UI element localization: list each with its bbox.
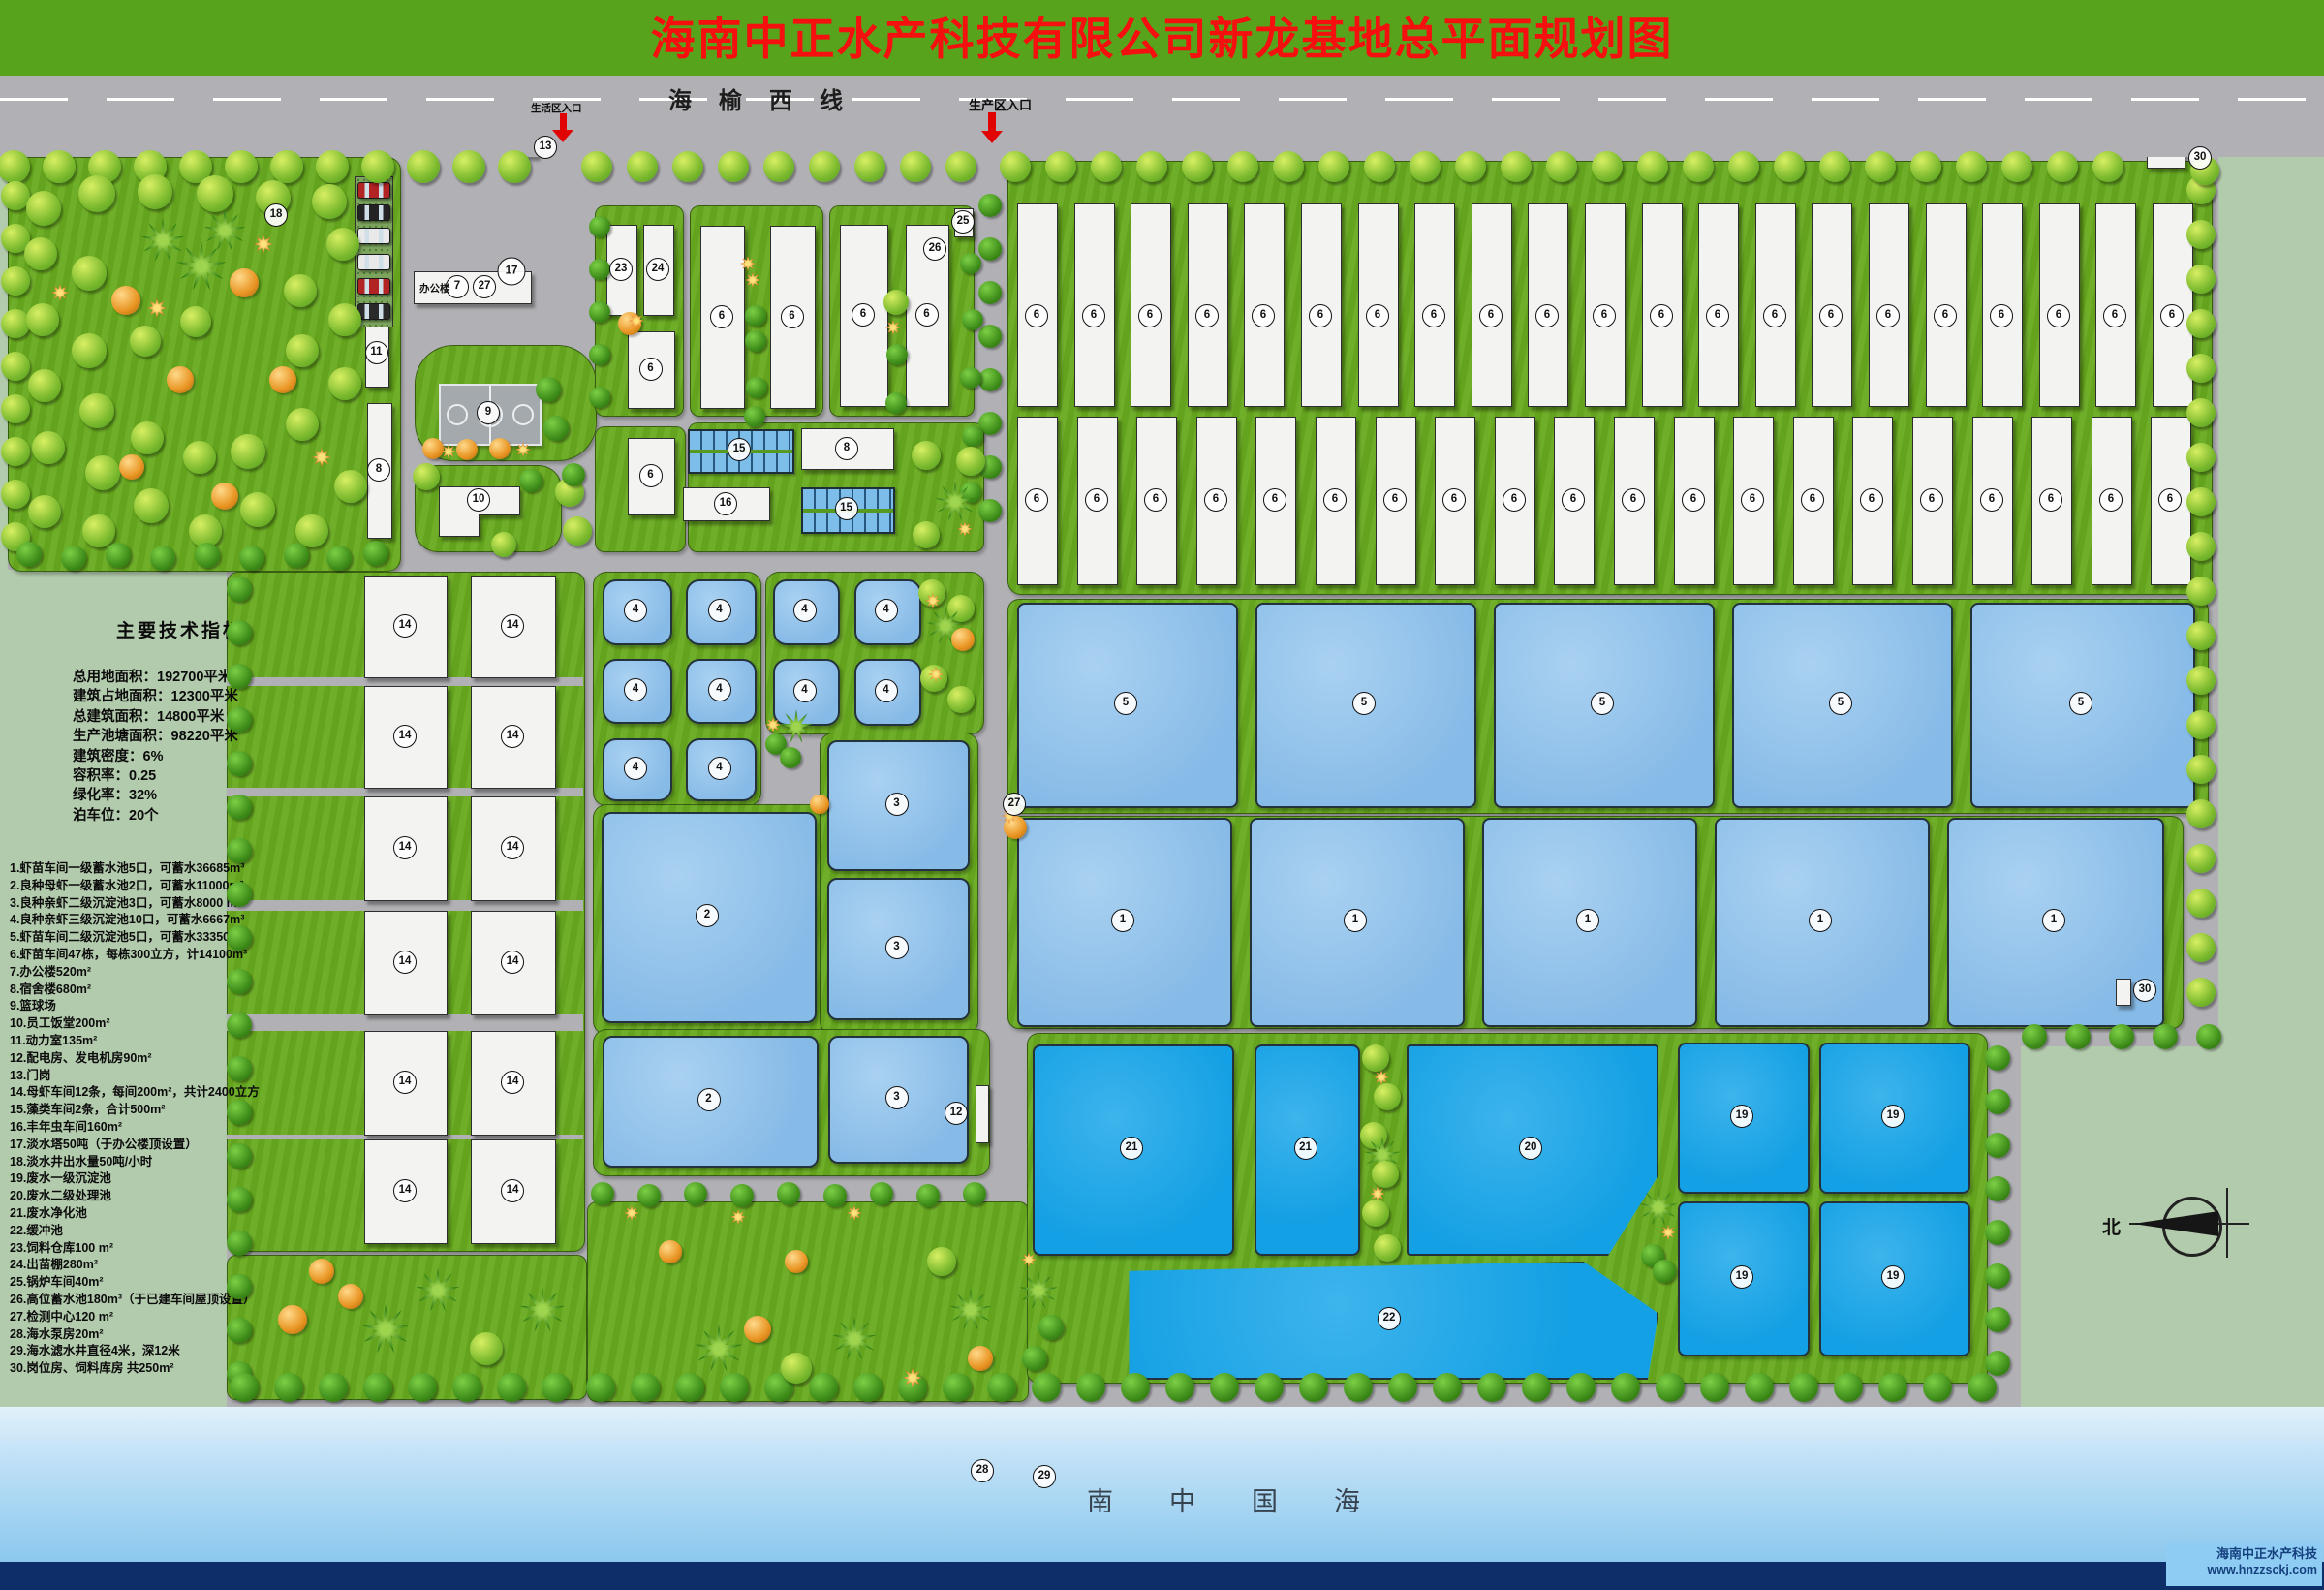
tree-icon xyxy=(1182,151,1213,182)
bush-icon xyxy=(562,463,585,486)
bush-icon xyxy=(408,1373,437,1402)
bush-icon xyxy=(1611,1373,1640,1402)
orange-tree-icon xyxy=(968,1346,993,1371)
tree-icon xyxy=(197,175,233,212)
tree-icon xyxy=(2186,265,2216,294)
flower-burst-icon xyxy=(903,1368,922,1387)
tree-icon xyxy=(498,150,531,183)
number-marker-6: 6 xyxy=(2160,304,2184,327)
bush-icon xyxy=(591,1182,614,1205)
number-marker-14: 14 xyxy=(501,1179,524,1202)
tree-icon xyxy=(134,488,169,523)
bush-icon xyxy=(1745,1373,1774,1402)
number-marker-19: 19 xyxy=(1730,1105,1753,1128)
tree-icon xyxy=(927,1247,956,1276)
number-marker-12: 12 xyxy=(945,1102,968,1125)
number-marker-27: 27 xyxy=(1003,793,1026,816)
bush-icon xyxy=(885,392,907,414)
bush-icon xyxy=(589,216,610,237)
bush-icon xyxy=(1522,1373,1551,1402)
number-marker-25: 25 xyxy=(951,210,975,234)
bush-icon xyxy=(780,747,801,768)
sea-band: 南中国海 xyxy=(0,1407,2324,1562)
indicator-line: 建筑密度：6% xyxy=(73,747,334,766)
bush-icon xyxy=(1923,1373,1952,1402)
bush-icon xyxy=(730,1184,754,1207)
number-marker-3: 3 xyxy=(885,936,909,959)
tree-icon xyxy=(2186,889,2216,918)
site-plan: 海南中正水产科技有限公司新龙基地总平面规划图 海榆西线 生活区入口 生产区入口 … xyxy=(0,0,2324,1590)
tree-icon xyxy=(24,237,57,270)
tree-icon xyxy=(2186,621,2216,650)
bush-icon xyxy=(1985,1133,2010,1158)
bush-icon xyxy=(1985,1307,2010,1332)
bush-icon xyxy=(589,259,610,280)
number-marker-29: 29 xyxy=(1033,1465,1056,1488)
tree-icon xyxy=(581,151,612,182)
tree-icon xyxy=(79,393,114,428)
living-entrance-label: 生活区入口 xyxy=(531,101,582,115)
office-building-label: 办公楼 xyxy=(419,281,450,296)
number-marker-23: 23 xyxy=(609,258,633,281)
legend-panel: 1.虾苗车间一级蓄水池5口，可蓄水36685m³2.良种母虾一级蓄水池2口，可蓄… xyxy=(10,860,339,1378)
bush-icon xyxy=(519,469,542,492)
flower-burst-icon xyxy=(51,284,69,301)
bush-icon xyxy=(1656,1373,1685,1402)
number-marker-6: 6 xyxy=(639,358,663,381)
bush-icon xyxy=(274,1373,303,1402)
bush-icon xyxy=(589,387,610,408)
orange-tree-icon xyxy=(167,366,194,393)
number-marker-8: 8 xyxy=(835,437,858,460)
bush-icon xyxy=(943,1373,972,1402)
number-marker-4: 4 xyxy=(624,757,647,780)
number-marker-1: 1 xyxy=(1809,909,1832,932)
tree-icon xyxy=(1091,151,1122,182)
tree-icon xyxy=(2001,151,2032,182)
tree-icon xyxy=(956,447,985,476)
number-marker-6: 6 xyxy=(2047,304,2070,327)
tree-icon xyxy=(912,441,941,470)
number-marker-6: 6 xyxy=(1195,304,1219,327)
number-marker-6: 6 xyxy=(1622,488,1645,512)
number-marker-6: 6 xyxy=(1082,304,1105,327)
number-marker-6: 6 xyxy=(1442,488,1466,512)
tree-icon xyxy=(138,174,172,209)
building xyxy=(439,514,480,537)
bush-icon xyxy=(987,1373,1016,1402)
bush-icon xyxy=(543,416,569,441)
flower-burst-icon xyxy=(254,234,273,254)
flower-burst-icon xyxy=(624,1205,639,1221)
bush-icon xyxy=(536,377,561,402)
bush-icon xyxy=(16,542,42,567)
legend-item: 5.虾苗车间二级沉淀池5口，可蓄水33350m³ xyxy=(10,929,339,947)
tree-icon xyxy=(1374,1083,1401,1110)
bush-icon xyxy=(319,1373,348,1402)
number-marker-18: 18 xyxy=(264,203,288,227)
tree-icon xyxy=(2186,755,2216,784)
bush-icon xyxy=(1985,1176,2010,1201)
bush-icon xyxy=(239,546,264,571)
bush-icon xyxy=(1433,1373,1462,1402)
number-marker-6: 6 xyxy=(1252,304,1275,327)
bush-icon xyxy=(326,546,352,571)
tree-icon xyxy=(180,306,211,337)
number-marker-9: 9 xyxy=(477,401,500,424)
legend-item: 19.废水一级沉淀池 xyxy=(10,1170,339,1188)
legend-item: 29.海水滤水井直径4米，深12米 xyxy=(10,1343,339,1360)
production-entrance-arrow xyxy=(988,112,996,131)
tree-icon xyxy=(2092,151,2123,182)
bush-icon xyxy=(227,838,252,863)
bush-icon xyxy=(2153,1024,2178,1049)
tree-icon xyxy=(328,303,361,336)
tree-icon xyxy=(563,516,592,546)
bush-icon xyxy=(1165,1373,1194,1402)
tree-icon xyxy=(627,151,658,182)
flower-burst-icon xyxy=(515,442,531,457)
number-marker-5: 5 xyxy=(1829,692,1852,715)
watermark: 海南中正水产科技 www.hnzzsckj.com xyxy=(2166,1543,2322,1586)
tree-icon xyxy=(1774,151,1805,182)
tree-icon xyxy=(1362,1200,1389,1227)
number-marker-6: 6 xyxy=(1706,304,1729,327)
bottom-navy-bar xyxy=(0,1562,2324,1590)
flower-burst-icon xyxy=(740,256,756,271)
indicators-lines: 总用地面积：192700平米建筑占地面积：12300平米总建筑面积：14800平… xyxy=(73,668,334,826)
tree-icon xyxy=(231,434,265,469)
legend-item: 18.淡水井出水量50吨/小时 xyxy=(10,1154,339,1171)
legend-item: 20.废水二级处理池 xyxy=(10,1188,339,1205)
number-marker-6: 6 xyxy=(1860,488,1883,512)
tree-icon xyxy=(1865,151,1896,182)
number-marker-4: 4 xyxy=(624,678,647,701)
tree-icon xyxy=(920,665,947,692)
number-marker-16: 16 xyxy=(714,492,737,515)
number-marker-6: 6 xyxy=(1309,304,1332,327)
bush-icon xyxy=(809,1373,838,1402)
number-marker-14: 14 xyxy=(501,1071,524,1094)
tree-icon xyxy=(2047,151,2078,182)
tree-icon xyxy=(43,150,76,183)
highway-center-line xyxy=(0,98,2324,101)
tree-icon xyxy=(2186,577,2216,606)
bush-icon xyxy=(586,1373,615,1402)
number-marker-28: 28 xyxy=(971,1459,994,1482)
orange-tree-icon xyxy=(659,1240,682,1263)
bush-icon xyxy=(227,1274,252,1299)
legend-item: 6.虾苗车间47栋，每栋300立方，计14100m³ xyxy=(10,947,339,964)
number-marker-4: 4 xyxy=(793,679,817,702)
orange-tree-icon xyxy=(456,439,478,460)
number-marker-21: 21 xyxy=(1294,1137,1317,1160)
bush-icon xyxy=(1344,1373,1373,1402)
tree-icon xyxy=(1,394,30,423)
bush-icon xyxy=(227,925,252,951)
highway-name: 海榆西线 xyxy=(668,81,870,115)
tree-icon xyxy=(312,184,347,219)
bush-icon xyxy=(745,305,766,327)
tree-icon xyxy=(413,463,440,490)
tree-icon xyxy=(85,455,120,490)
production-entrance: 生产区入口 xyxy=(969,95,1056,157)
bush-icon xyxy=(227,1056,252,1081)
bush-icon xyxy=(61,546,86,571)
bush-icon xyxy=(227,1013,252,1038)
tree-icon xyxy=(72,333,107,368)
flower-burst-icon xyxy=(925,593,941,608)
tree-icon xyxy=(2186,666,2216,695)
bush-icon xyxy=(870,1182,893,1205)
legend-item: 7.办公楼520m² xyxy=(10,964,339,982)
number-marker-22: 22 xyxy=(1378,1307,1401,1330)
tree-icon xyxy=(1045,151,1076,182)
tree-icon xyxy=(28,495,61,528)
number-marker-10: 10 xyxy=(467,488,490,512)
tree-icon xyxy=(286,334,319,367)
number-marker-6: 6 xyxy=(1763,304,1786,327)
legend-item: 17.淡水塔50吨（于办公楼顶设置） xyxy=(10,1137,339,1154)
bush-icon xyxy=(978,499,1002,522)
number-marker-11: 11 xyxy=(365,341,388,364)
bush-icon xyxy=(1653,1260,1676,1283)
number-marker-21: 21 xyxy=(1120,1137,1143,1160)
tree-icon xyxy=(316,150,349,183)
tree-icon xyxy=(78,175,115,212)
bush-icon xyxy=(227,969,252,994)
bush-icon xyxy=(227,707,252,733)
number-marker-6: 6 xyxy=(2158,488,2182,512)
parked-car xyxy=(357,204,390,221)
number-marker-20: 20 xyxy=(1519,1137,1542,1160)
number-marker-5: 5 xyxy=(1114,692,1137,715)
bush-icon xyxy=(227,664,252,689)
number-marker-2: 2 xyxy=(697,1088,721,1111)
bush-icon xyxy=(589,301,610,323)
legend-item: 9.篮球场 xyxy=(10,998,339,1015)
tree-icon xyxy=(1318,151,1349,182)
bush-icon xyxy=(1038,1315,1064,1340)
court-key-left xyxy=(447,404,468,425)
legend-item: 25.锅炉车间40m² xyxy=(10,1274,339,1292)
bush-icon xyxy=(542,1373,571,1402)
flower-burst-icon xyxy=(1660,1225,1676,1240)
number-marker-6: 6 xyxy=(1025,304,1048,327)
bush-icon xyxy=(963,1182,986,1205)
parked-car xyxy=(357,303,390,320)
number-marker-6: 6 xyxy=(1593,304,1616,327)
parked-car xyxy=(357,254,390,270)
number-marker-14: 14 xyxy=(501,836,524,859)
number-marker-6: 6 xyxy=(1085,488,1108,512)
bush-icon xyxy=(150,546,175,571)
compass-north-label: 北 xyxy=(2102,1213,2121,1239)
tree-icon xyxy=(2186,532,2216,561)
bush-icon xyxy=(1985,1220,2010,1245)
number-marker-14: 14 xyxy=(393,1071,417,1094)
number-marker-6: 6 xyxy=(1741,488,1764,512)
bush-icon xyxy=(746,377,767,398)
tree-icon xyxy=(2186,844,2216,873)
tree-icon xyxy=(1,480,30,509)
tree-icon xyxy=(1728,151,1759,182)
watermark-url: www.hnzzsckj.com xyxy=(2166,1562,2317,1577)
flower-burst-icon xyxy=(147,298,167,318)
legend-item: 13.门岗 xyxy=(10,1068,339,1085)
bush-icon xyxy=(978,368,1002,391)
bush-icon xyxy=(684,1182,707,1205)
tree-icon xyxy=(361,150,394,183)
orange-tree-icon xyxy=(111,286,140,315)
number-marker-5: 5 xyxy=(1591,692,1614,715)
bush-icon xyxy=(2109,1024,2134,1049)
tree-icon xyxy=(1227,151,1258,182)
tree-icon xyxy=(913,521,940,548)
bush-icon xyxy=(227,1231,252,1256)
number-marker-19: 19 xyxy=(1881,1105,1905,1128)
tree-icon xyxy=(2186,398,2216,427)
bush-icon xyxy=(1968,1373,1997,1402)
number-marker-6: 6 xyxy=(1990,304,2013,327)
legend-item: 14.母虾车间12条，每间200m²，共计2400立方 xyxy=(10,1084,339,1102)
number-marker-14: 14 xyxy=(393,725,417,748)
number-marker-2: 2 xyxy=(696,904,719,927)
number-marker-6: 6 xyxy=(710,305,733,328)
number-marker-14: 14 xyxy=(393,1179,417,1202)
number-marker-8: 8 xyxy=(367,458,390,482)
bush-icon xyxy=(227,620,252,645)
tree-icon xyxy=(1410,151,1441,182)
bush-icon xyxy=(1985,1351,2010,1376)
indicators-title: 主要技术指标 xyxy=(116,616,334,642)
number-marker-6: 6 xyxy=(1503,488,1526,512)
bush-icon xyxy=(1789,1373,1818,1402)
tree-icon xyxy=(1501,151,1532,182)
bush-icon xyxy=(1255,1373,1284,1402)
number-marker-6: 6 xyxy=(1138,304,1162,327)
tree-icon xyxy=(1910,151,1941,182)
bush-icon xyxy=(195,543,220,568)
tree-icon xyxy=(947,686,975,713)
legend-item: 16.丰年虫车间160m² xyxy=(10,1119,339,1137)
bush-icon xyxy=(1985,1045,2010,1071)
number-marker-15: 15 xyxy=(728,438,751,461)
tree-icon xyxy=(82,514,115,547)
technical-indicators-panel: 主要技术指标 总用地面积：192700平米建筑占地面积：12300平米总建筑面积… xyxy=(73,616,334,826)
bush-icon xyxy=(227,882,252,907)
bush-icon xyxy=(227,577,252,602)
tree-icon xyxy=(718,151,749,182)
bush-icon xyxy=(978,325,1002,348)
tree-icon xyxy=(945,151,976,182)
bush-icon xyxy=(1388,1373,1417,1402)
tree-icon xyxy=(183,441,216,474)
tree-icon xyxy=(1956,151,1987,182)
tree-icon xyxy=(763,151,794,182)
tree-icon xyxy=(781,1353,812,1384)
tree-icon xyxy=(2186,710,2216,739)
orange-tree-icon xyxy=(338,1284,363,1309)
number-marker-6: 6 xyxy=(852,303,875,327)
number-marker-6: 6 xyxy=(1366,304,1389,327)
bush-icon xyxy=(886,344,908,365)
tree-icon xyxy=(2186,220,2216,249)
number-marker-14: 14 xyxy=(393,836,417,859)
tree-icon xyxy=(72,256,107,291)
number-marker-6: 6 xyxy=(1682,488,1705,512)
tree-icon xyxy=(900,151,931,182)
bush-icon xyxy=(1076,1373,1105,1402)
number-marker-6: 6 xyxy=(1934,304,1957,327)
tree-icon xyxy=(28,369,61,402)
number-marker-4: 4 xyxy=(875,599,898,622)
number-marker-24: 24 xyxy=(646,258,669,281)
bush-icon xyxy=(1299,1373,1328,1402)
tree-icon xyxy=(1455,151,1486,182)
flower-burst-icon xyxy=(629,313,644,328)
orange-tree-icon xyxy=(119,454,144,480)
tree-icon xyxy=(286,408,319,441)
tree-icon xyxy=(26,191,61,226)
orange-tree-icon xyxy=(269,366,296,393)
bush-icon xyxy=(853,1373,883,1402)
bush-icon xyxy=(227,751,252,776)
bush-icon xyxy=(1477,1373,1506,1402)
tree-icon xyxy=(334,470,367,503)
number-marker-6: 6 xyxy=(1819,304,1843,327)
tree-icon xyxy=(1546,151,1577,182)
legend-item: 8.宿舍楼680m² xyxy=(10,982,339,999)
bush-icon xyxy=(1032,1373,1061,1402)
bush-icon xyxy=(227,1143,252,1169)
tree-icon xyxy=(2186,443,2216,472)
number-marker-3: 3 xyxy=(885,793,909,816)
legend-item: 11.动力室135m² xyxy=(10,1033,339,1050)
tree-icon xyxy=(1,437,30,466)
flower-burst-icon xyxy=(847,1205,862,1221)
parked-car xyxy=(357,228,390,244)
flower-burst-icon xyxy=(1021,1252,1037,1267)
bush-icon xyxy=(497,1373,526,1402)
tree-icon xyxy=(2186,978,2216,1007)
number-marker-6: 6 xyxy=(1980,488,2003,512)
number-marker-1: 1 xyxy=(1111,909,1134,932)
production-entrance-label: 生产区入口 xyxy=(969,95,1032,113)
number-marker-5: 5 xyxy=(1352,692,1376,715)
title-band: 海南中正水产科技有限公司新龙基地总平面规划图 xyxy=(0,0,2324,76)
tree-icon xyxy=(2186,354,2216,383)
number-marker-14: 14 xyxy=(393,951,417,974)
number-marker-6: 6 xyxy=(1422,304,1445,327)
indicator-line: 生产池塘面积：98220平米 xyxy=(73,727,334,746)
tree-icon xyxy=(326,228,359,261)
living-entrance-arrow xyxy=(560,113,567,130)
tree-icon xyxy=(130,326,161,357)
bush-icon xyxy=(916,1184,940,1207)
tree-icon xyxy=(1372,1161,1399,1188)
bush-icon xyxy=(284,543,309,568)
tree-icon xyxy=(2186,309,2216,338)
production-entrance-arrowhead xyxy=(981,131,1003,143)
building xyxy=(976,1085,989,1143)
number-marker-4: 4 xyxy=(875,679,898,702)
compass-tick xyxy=(2226,1188,2228,1258)
tree-icon xyxy=(672,151,703,182)
bush-icon xyxy=(227,1100,252,1125)
number-marker-6: 6 xyxy=(1650,304,1673,327)
indicator-line: 总建筑面积：14800平米 xyxy=(73,707,334,727)
